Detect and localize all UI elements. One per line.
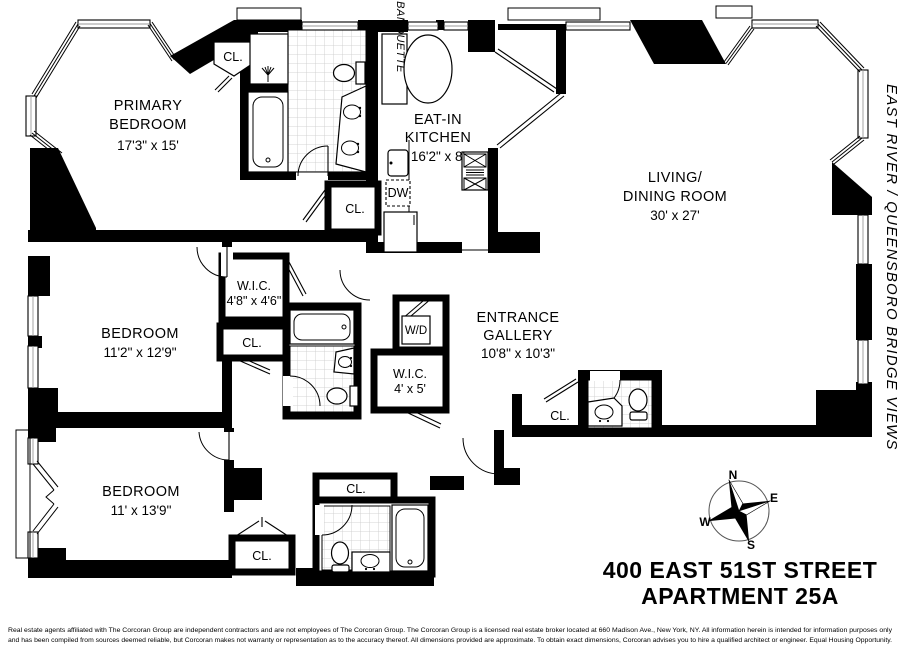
banquette-label: BANQUETTE <box>394 1 406 73</box>
bedroom-lower-dims: 11' x 13'9" <box>111 503 172 518</box>
svg-text:KITCHEN: KITCHEN <box>405 130 471 146</box>
closet-label: CL. <box>345 202 364 216</box>
refrigerator <box>384 212 417 252</box>
living-dining-dims: 30' x 27' <box>650 208 699 223</box>
shower-stall <box>250 34 288 84</box>
closet-label: CL. <box>242 336 261 350</box>
kitchen-dims: 16'2" x 8' <box>411 149 465 164</box>
compass-west: W <box>699 515 711 529</box>
toilet-icon <box>629 389 647 411</box>
address-line1: 400 EAST 51ST STREET <box>603 557 878 583</box>
compass-north: N <box>729 468 738 482</box>
dishwasher-label: DW <box>388 186 409 200</box>
entrance-gallery-dims: 10'8" x 10'3" <box>481 346 555 361</box>
closet-label: CL. <box>346 482 365 496</box>
wic2-dims: 4' x 5' <box>394 382 426 396</box>
bathtub <box>290 310 354 344</box>
floor-plan-page: PRIMARY BEDROOM 17'3" x 15' EAT-IN KITCH… <box>0 0 900 651</box>
bathtub <box>248 92 288 172</box>
walk-in-closet-2-room <box>374 352 446 410</box>
svg-text:DINING ROOM: DINING ROOM <box>623 189 727 205</box>
view-label: EAST RIVER / QUEENSBORO BRIDGE VIEWS <box>883 84 900 451</box>
washer-dryer-label: W/D <box>405 325 427 337</box>
address-line2: APARTMENT 25A <box>641 583 839 609</box>
bedroom-middle-label: BEDROOM <box>101 326 179 342</box>
sink-vanity <box>588 398 622 426</box>
toilet-icon <box>327 388 347 404</box>
disclaimer-line2: and has been compiled from sources deeme… <box>8 637 892 644</box>
living-dining-label: LIVING/ <box>648 170 703 186</box>
kitchen-label: EAT-IN <box>414 112 462 128</box>
wic1-label: W.I.C. <box>237 279 271 293</box>
toilet-icon <box>334 65 355 82</box>
bathtub <box>392 505 428 571</box>
closet-label: CL. <box>550 409 569 423</box>
compass-south: S <box>747 538 755 552</box>
closet-label: CL. <box>252 549 271 563</box>
compass-east: E <box>770 491 778 505</box>
wic1-dims: 4'8" x 4'6" <box>227 294 282 308</box>
wic2-label: W.I.C. <box>393 367 427 381</box>
primary-bedroom-label: PRIMARY <box>114 98 183 114</box>
bedroom-middle-dims: 11'2" x 12'9" <box>103 345 176 360</box>
primary-bedroom-dims: 17'3" x 15' <box>117 138 179 153</box>
closet-label: CL. <box>223 50 242 64</box>
toilet-icon <box>332 542 349 564</box>
disclaimer-line1: Real estate agents affiliated with The C… <box>8 627 893 634</box>
dining-table <box>404 35 452 103</box>
entrance-gallery-label: ENTRANCE <box>477 310 560 326</box>
svg-text:BEDROOM: BEDROOM <box>109 117 187 133</box>
svg-text:GALLERY: GALLERY <box>483 328 552 344</box>
floor-plan: PRIMARY BEDROOM 17'3" x 15' EAT-IN KITCH… <box>0 0 900 651</box>
bedroom-lower-label: BEDROOM <box>102 484 180 500</box>
range-icon <box>462 152 488 190</box>
